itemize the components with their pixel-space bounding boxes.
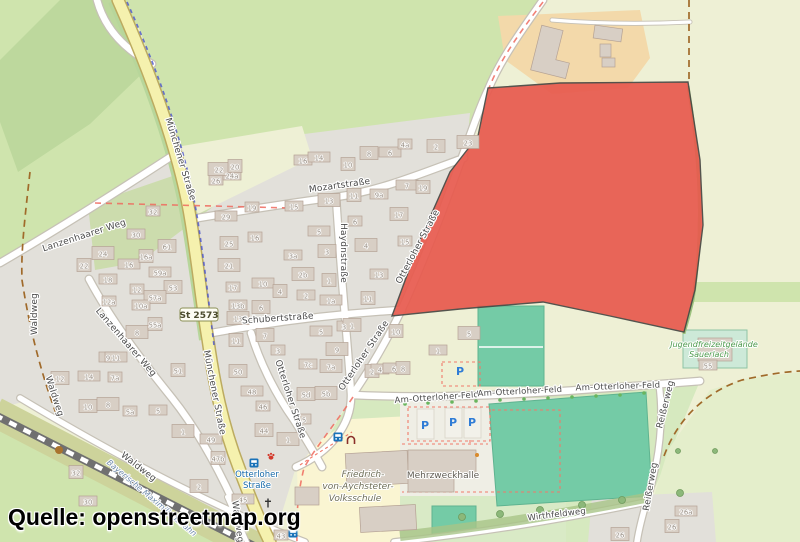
house-number: 17: [229, 285, 238, 293]
bus-stop-icon: [334, 433, 343, 442]
house-number: 50: [234, 369, 243, 377]
street-label: Haydnstraße: [338, 223, 348, 283]
house-number: 10: [84, 404, 93, 412]
house-number: 6: [388, 150, 392, 158]
house-number: 16: [251, 235, 260, 243]
house-number: 11: [350, 193, 359, 201]
house-number: 3: [276, 348, 280, 356]
house-number: 46: [259, 404, 268, 412]
poi-label: Mehrzweckhalle: [407, 471, 480, 481]
poi-label: Volksschule: [329, 494, 382, 504]
house-number: 53: [169, 285, 178, 293]
house-number: 13b: [232, 303, 245, 311]
svg-text:P: P: [468, 416, 476, 429]
farm-building: [602, 58, 615, 67]
svg-text:P: P: [449, 416, 457, 429]
house-number: 7c: [304, 362, 312, 370]
house-number: 24a: [226, 173, 239, 181]
house-number: 55: [704, 363, 713, 371]
house-number: 11: [112, 355, 121, 363]
house-number: 10: [392, 329, 401, 337]
house-number: 6: [392, 366, 396, 374]
house-number: 3: [342, 324, 346, 332]
house-number: 16: [125, 262, 134, 270]
svg-text:St 2573: St 2573: [180, 311, 219, 321]
house-number: 43: [277, 533, 286, 541]
house-number: 5: [317, 229, 321, 237]
house-number: 15: [401, 239, 410, 247]
house-number: 19: [248, 205, 257, 213]
house-number: 17: [395, 212, 404, 220]
house-number: 1a: [327, 298, 336, 306]
house-number: 1: [286, 437, 290, 445]
house-number: 21: [225, 263, 234, 271]
house-number: 44: [260, 428, 269, 436]
house-number: 22: [80, 263, 89, 271]
house-number: 5: [156, 408, 160, 416]
house-number: 29: [222, 214, 231, 222]
house-number: 5a: [126, 409, 135, 417]
poi-label: Sauerlach: [689, 350, 729, 359]
house-number: 26a: [680, 509, 693, 517]
svg-text:P: P: [421, 419, 429, 432]
grass-strip-east: [693, 282, 800, 302]
school-building: [359, 505, 416, 533]
house-number: 10: [259, 281, 268, 289]
svg-text:P: P: [456, 365, 464, 378]
house-number: 8: [367, 151, 371, 159]
house-number: 2: [434, 144, 438, 152]
poi-dot-icon: [55, 446, 63, 454]
house-number: 3: [325, 249, 329, 257]
house-number: 4a: [401, 142, 410, 150]
house-number: 7a: [327, 364, 336, 372]
house-number: 23: [464, 140, 473, 148]
house-number: 2: [304, 293, 308, 301]
house-number: 51: [174, 368, 183, 376]
house-number: 2: [197, 484, 201, 492]
house-number: 61: [163, 244, 172, 252]
house-number: 13: [325, 198, 334, 206]
house-number: 19: [419, 185, 428, 193]
house-number: 11: [232, 338, 241, 346]
house-number: 2: [370, 369, 374, 377]
house-number: 10a: [135, 303, 148, 311]
poi-label: von-Aychsteter-: [322, 482, 393, 492]
house-number: 14: [85, 374, 94, 382]
poi-label: Jugendfreizeitgelände: [668, 340, 758, 349]
house-number: 12a: [103, 299, 116, 307]
house-number: 8: [401, 366, 405, 374]
house-number: 22: [215, 167, 224, 175]
house-number: 4: [364, 243, 368, 251]
road-ref-badge: St 2573: [180, 308, 219, 321]
house-number: 15: [290, 204, 299, 212]
house-number: 4: [278, 289, 282, 297]
house-number: 7: [405, 183, 409, 191]
house-number: 16a: [140, 254, 153, 262]
house-number: 12: [133, 287, 142, 295]
school-building: [295, 487, 319, 505]
house-number: 4: [378, 367, 382, 375]
house-number: 59a: [154, 270, 167, 278]
map-attribution: Quelle: openstreetmap.org: [8, 504, 301, 531]
house-number: 32: [149, 209, 158, 217]
house-number: 1: [327, 278, 331, 286]
house-number: 1: [436, 348, 440, 356]
house-number: 8: [135, 330, 139, 338]
house-number: 24: [99, 251, 108, 259]
house-number: 8: [106, 402, 110, 410]
house-number: 6: [259, 305, 263, 313]
house-number: 11: [364, 296, 373, 304]
house-number: 5b: [322, 391, 331, 399]
parking-icon: P: [468, 416, 476, 429]
house-number: 5: [467, 331, 471, 339]
house-number: 49: [207, 437, 216, 445]
house-number: 26: [616, 532, 625, 540]
map-viewport[interactable]: PPPP 32302422181616a6159a125357a12a10a85…: [0, 0, 800, 542]
house-number: 32: [72, 470, 81, 478]
house-number: 2b: [299, 272, 308, 280]
house-number: 9a: [375, 192, 384, 200]
house-number: 20: [231, 164, 240, 172]
house-number: 5: [319, 329, 323, 337]
house-number: 1: [350, 323, 354, 331]
house-number: 26: [212, 178, 221, 186]
house-number: 10: [344, 162, 353, 170]
house-number: 55a: [149, 322, 162, 330]
house-number: 30: [132, 232, 141, 240]
house-number: 48: [248, 389, 257, 397]
poi-label: Otterloher: [235, 470, 279, 480]
house-number: 1: [181, 429, 185, 437]
street-label: Waldweg: [30, 293, 40, 335]
house-number: 18: [104, 277, 113, 285]
farm-building: [600, 44, 611, 57]
house-number: 14: [315, 155, 324, 163]
house-number: 25: [225, 241, 234, 249]
bus-stop-icon: [250, 459, 259, 468]
parking-icon: P: [456, 365, 464, 378]
house-number: 3a: [289, 253, 298, 261]
house-number: 5d: [302, 392, 311, 400]
parking-icon: P: [449, 416, 457, 429]
house-number: 47b: [212, 456, 225, 464]
house-number: 9: [106, 355, 110, 363]
house-number: 57a: [149, 295, 162, 303]
house-number: 9: [335, 347, 339, 355]
house-number: 12: [56, 376, 65, 384]
poi-label: Straße: [243, 481, 271, 491]
house-number: 13: [375, 272, 384, 280]
house-number: 7: [263, 333, 267, 341]
house-number: 6: [353, 219, 357, 227]
house-number: 7a: [111, 375, 120, 383]
house-number: 16: [299, 158, 308, 166]
house-number: 26: [668, 524, 677, 532]
map-canvas[interactable]: PPPP 32302422181616a6159a125357a12a10a85…: [0, 0, 800, 542]
poi-label: Friedrich-: [342, 470, 385, 480]
parking-icon: P: [421, 419, 429, 432]
